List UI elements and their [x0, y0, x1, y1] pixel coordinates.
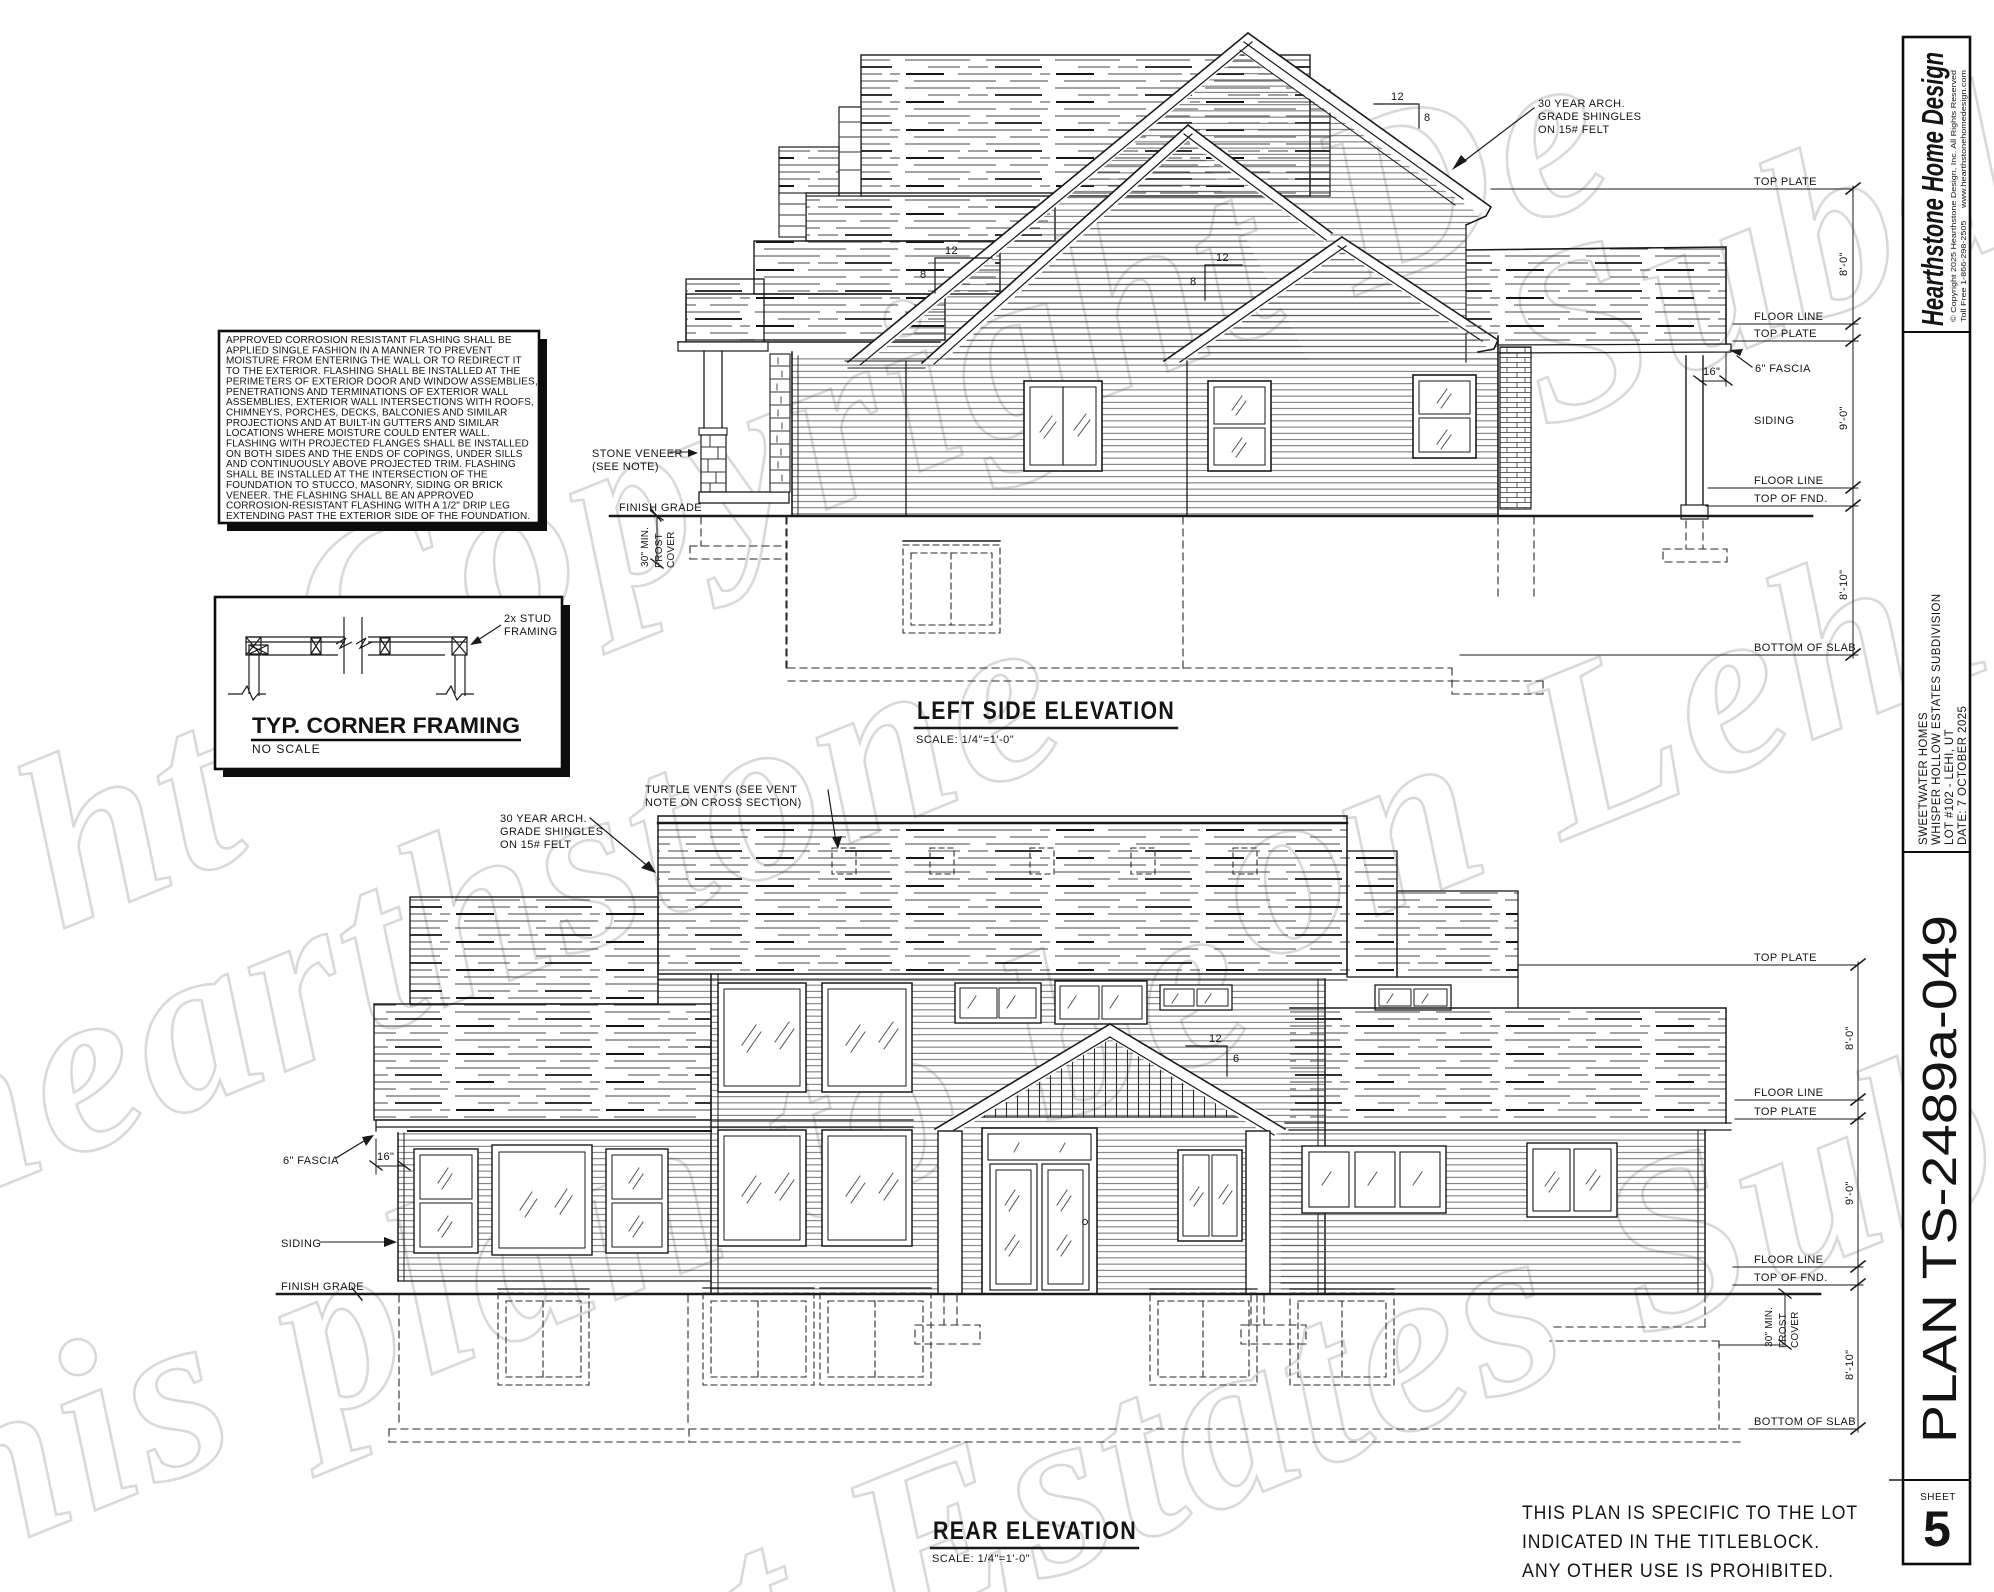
- svg-text:FROST: FROST: [654, 533, 665, 568]
- svg-text:SCALE: 1/4"=1'-0": SCALE: 1/4"=1'-0": [916, 734, 1014, 746]
- svg-text:GRADE SHINGLES: GRADE SHINGLES: [1538, 111, 1641, 123]
- svg-text:PROJECTIONS AND AT BUILT-IN GU: PROJECTIONS AND AT BUILT-IN GUTTERS AND …: [226, 418, 499, 429]
- svg-text:BOTTOM OF SLAB: BOTTOM OF SLAB: [1754, 1416, 1856, 1428]
- svg-text:ON 15# FELT: ON 15# FELT: [500, 839, 571, 851]
- svg-text:TOP OF FND.: TOP OF FND.: [1754, 1272, 1828, 1284]
- svg-text:8'-0": 8'-0": [1844, 1026, 1856, 1050]
- svg-text:ANY OTHER USE IS PROHIBITED.: ANY OTHER USE IS PROHIBITED.: [1522, 1561, 1834, 1582]
- svg-text:AND CONTINUOUSLY ABOVE PROJECT: AND CONTINUOUSLY ABOVE PROJECTED TRIM. F…: [226, 459, 516, 470]
- svg-text:12: 12: [945, 245, 958, 257]
- svg-text:30 YEAR ARCH.: 30 YEAR ARCH.: [500, 813, 587, 825]
- svg-text:8'-10": 8'-10": [1838, 570, 1850, 600]
- svg-text:16": 16": [377, 1151, 394, 1163]
- svg-text:PLAN TS-2489a-049: PLAN TS-2489a-049: [1914, 915, 1967, 1443]
- svg-text:6" FASCIA: 6" FASCIA: [283, 1155, 339, 1167]
- svg-text:6: 6: [1233, 1053, 1240, 1065]
- svg-text:© Copyright 2025 Hearthstone D: © Copyright 2025 Hearthstone Design, Inc…: [1949, 70, 1958, 322]
- svg-text:SIDING: SIDING: [281, 1238, 321, 1250]
- svg-text:MOISTURE FROM ENTERING THE WAL: MOISTURE FROM ENTERING THE WALL OR TO RE…: [226, 356, 522, 367]
- svg-text:12: 12: [1391, 91, 1404, 103]
- svg-text:30 YEAR ARCH.: 30 YEAR ARCH.: [1538, 98, 1625, 110]
- svg-text:SIDING: SIDING: [1754, 415, 1794, 427]
- svg-text:8: 8: [1190, 276, 1197, 288]
- svg-text:ASSEMBLIES, EXTERIOR WALL INTE: ASSEMBLIES, EXTERIOR WALL INTERSECTIONS …: [226, 397, 534, 408]
- svg-text:APPROVED CORROSION RESISTANT F: APPROVED CORROSION RESISTANT FLASHING SH…: [226, 335, 512, 346]
- svg-text:Hearthstone Home Design: Hearthstone Home Design: [1915, 52, 1950, 326]
- svg-text:ON 15# FELT: ON 15# FELT: [1538, 124, 1609, 136]
- svg-text:LEFT SIDE ELEVATION: LEFT SIDE ELEVATION: [917, 697, 1175, 725]
- svg-text:TOP PLATE: TOP PLATE: [1754, 176, 1817, 188]
- svg-text:8'-10": 8'-10": [1844, 1350, 1856, 1380]
- svg-text:30" MIN.: 30" MIN.: [640, 527, 651, 567]
- svg-text:STONE VENEER: STONE VENEER: [592, 448, 683, 460]
- svg-text:SWEETWATER HOMES: SWEETWATER HOMES: [1918, 712, 1930, 845]
- svg-text:FLOOR LINE: FLOOR LINE: [1754, 311, 1823, 323]
- svg-text:FINISH GRADE: FINISH GRADE: [619, 502, 702, 514]
- svg-text:CORROSION-RESISTANT FLASHING W: CORROSION-RESISTANT FLASHING WITH A 1/2"…: [226, 501, 510, 512]
- svg-text:DATE: 7 OCTOBER 2025: DATE: 7 OCTOBER 2025: [1957, 706, 1969, 845]
- svg-text:FROST: FROST: [1778, 1313, 1789, 1348]
- svg-text:9'-0": 9'-0": [1838, 406, 1850, 430]
- svg-text:FOUNDATION TO STUCCO, MASONRY,: FOUNDATION TO STUCCO, MASONRY, SIDING OR…: [226, 480, 503, 491]
- svg-text:(SEE NOTE): (SEE NOTE): [592, 461, 659, 473]
- svg-text:FLASHING WITH PROJECTED FLANGE: FLASHING WITH PROJECTED FLANGES SHALL BE…: [226, 439, 529, 450]
- svg-text:9'-0": 9'-0": [1844, 1181, 1856, 1205]
- svg-text:TOP PLATE: TOP PLATE: [1754, 1106, 1817, 1118]
- svg-text:FINISH GRADE: FINISH GRADE: [281, 1281, 364, 1293]
- svg-text:WHISPER HOLLOW ESTATES SUBDIVI: WHISPER HOLLOW ESTATES SUBDIVISION: [1931, 593, 1943, 845]
- svg-text:FRAMING: FRAMING: [504, 626, 558, 638]
- svg-text:8: 8: [1424, 112, 1431, 124]
- svg-text:TOP PLATE: TOP PLATE: [1754, 952, 1817, 964]
- svg-text:TOP PLATE: TOP PLATE: [1754, 328, 1817, 340]
- svg-text:THIS PLAN IS SPECIFIC TO THE L: THIS PLAN IS SPECIFIC TO THE LOT: [1522, 1503, 1858, 1524]
- svg-text:8'-0": 8'-0": [1838, 252, 1850, 276]
- svg-text:SCALE: 1/4"=1'-0": SCALE: 1/4"=1'-0": [932, 1553, 1030, 1565]
- svg-text:EXTENDING PAST THE EXTERIOR SI: EXTENDING PAST THE EXTERIOR SIDE OF THE …: [226, 511, 530, 522]
- svg-text:12: 12: [1209, 1033, 1222, 1045]
- svg-text:BOTTOM OF SLAB: BOTTOM OF SLAB: [1754, 642, 1856, 654]
- svg-text:REAR ELEVATION: REAR ELEVATION: [933, 1517, 1137, 1545]
- svg-text:LOT #102 - LEHI, UT: LOT #102 - LEHI, UT: [1944, 729, 1956, 845]
- svg-text:COVER: COVER: [666, 531, 677, 568]
- svg-text:16": 16": [1703, 366, 1720, 378]
- svg-text:8: 8: [920, 269, 927, 281]
- svg-text:5: 5: [1923, 1501, 1951, 1557]
- svg-text:TYP. CORNER FRAMING: TYP. CORNER FRAMING: [252, 713, 520, 738]
- svg-text:NOTE ON CROSS SECTION): NOTE ON CROSS SECTION): [645, 797, 802, 809]
- svg-text:TOP OF FND.: TOP OF FND.: [1754, 493, 1828, 505]
- svg-text:COVER: COVER: [1790, 1311, 1801, 1348]
- svg-text:FLOOR LINE: FLOOR LINE: [1754, 1087, 1823, 1099]
- svg-text:FLOOR LINE: FLOOR LINE: [1754, 475, 1823, 487]
- svg-text:FLOOR LINE: FLOOR LINE: [1754, 1254, 1823, 1266]
- svg-text:NO SCALE: NO SCALE: [252, 742, 321, 756]
- svg-text:TURTLE VENTS (SEE VENT: TURTLE VENTS (SEE VENT: [645, 784, 797, 796]
- svg-text:Toll Free 1-866-298-2505 w: Toll Free 1-866-298-2505 www.hearthstone…: [1959, 70, 1968, 322]
- svg-text:GRADE SHINGLES: GRADE SHINGLES: [500, 826, 603, 838]
- svg-text:30" MIN.: 30" MIN.: [1764, 1307, 1775, 1347]
- svg-text:12: 12: [1216, 252, 1229, 264]
- svg-text:2x STUD: 2x STUD: [504, 613, 551, 625]
- svg-text:6" FASCIA: 6" FASCIA: [1755, 363, 1811, 375]
- svg-text:PERIMETERS OF EXTERIOR DOOR AN: PERIMETERS OF EXTERIOR DOOR AND WINDOW A…: [226, 376, 538, 387]
- svg-text:INDICATED IN THE TITLEBLOCK.: INDICATED IN THE TITLEBLOCK.: [1522, 1532, 1820, 1553]
